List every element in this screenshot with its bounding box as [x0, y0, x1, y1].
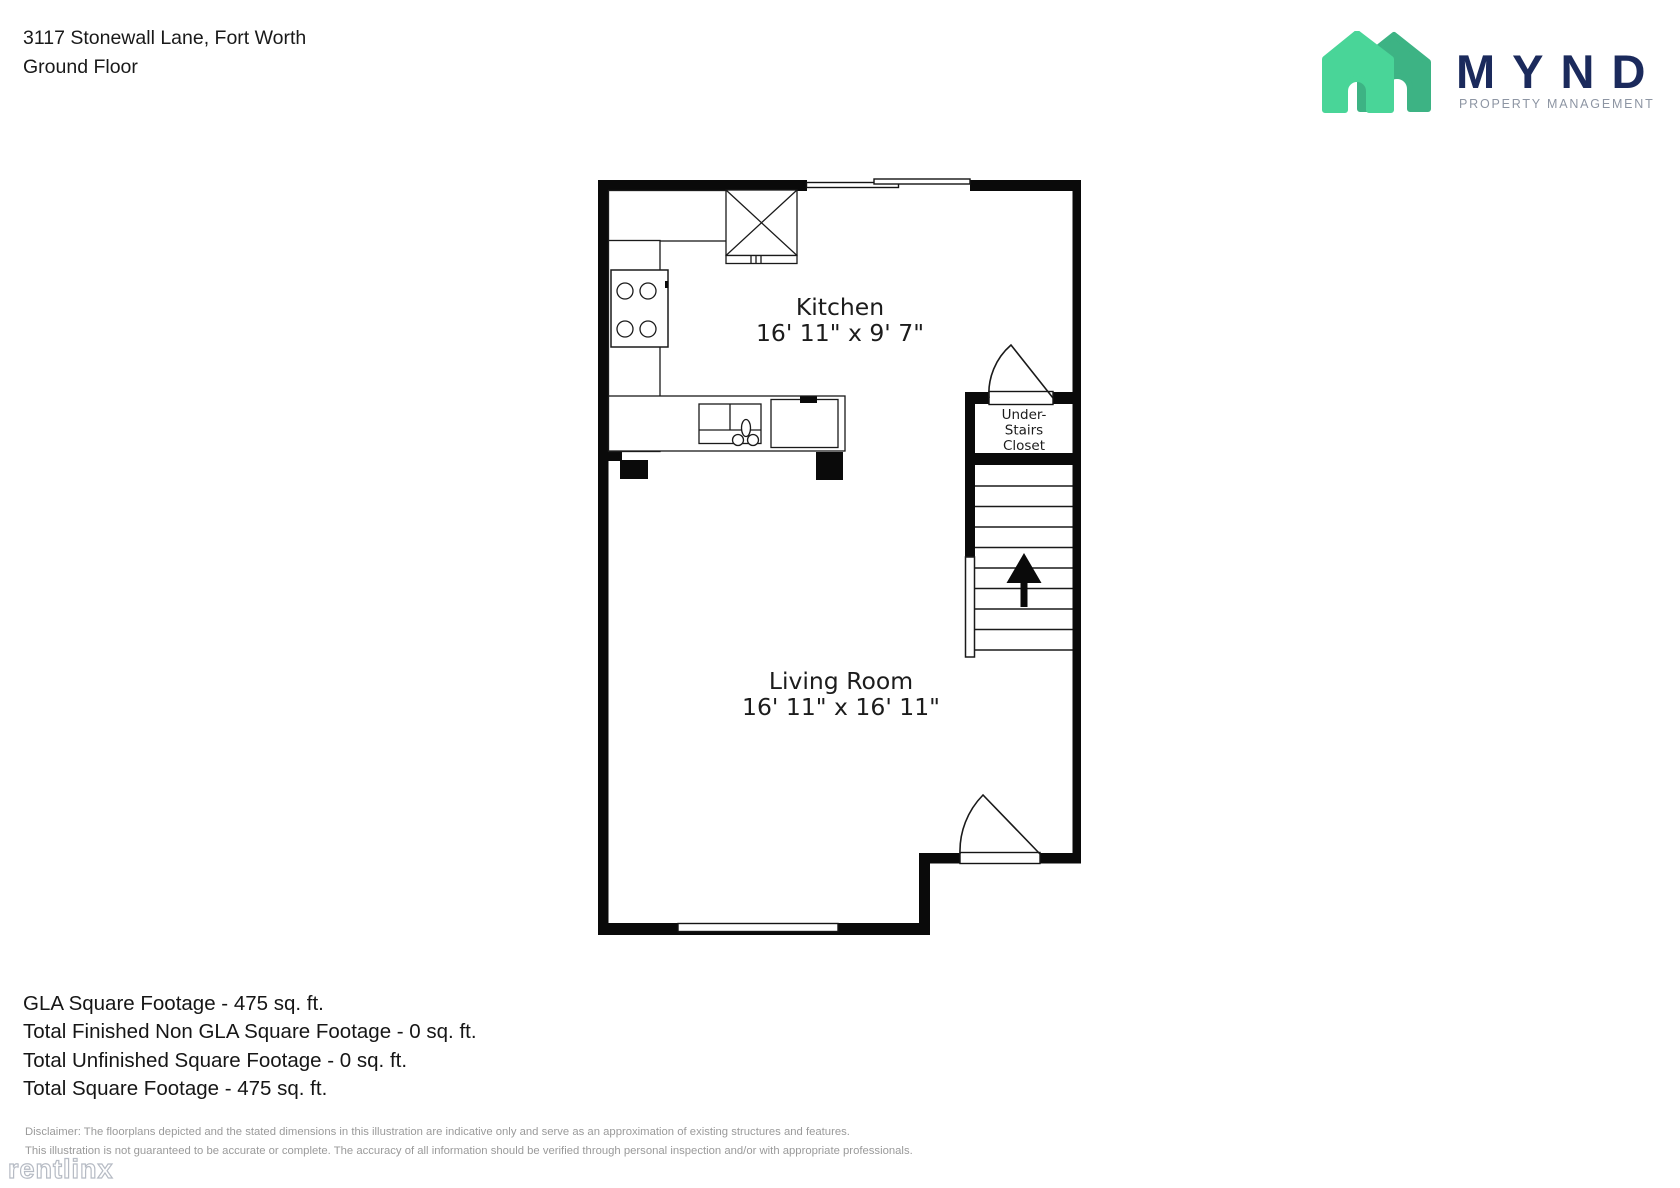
stairs	[966, 486, 1073, 657]
disclaimer-line-2: This illustration is not guaranteed to b…	[25, 1142, 913, 1161]
living-room-dimensions: 16' 11" x 16' 11"	[742, 693, 940, 721]
sink-icon	[699, 404, 761, 446]
summary-line-gla: GLA Square Footage - 475 sq. ft.	[23, 990, 477, 1018]
step-wall	[919, 853, 930, 935]
summary-line-total: Total Square Footage - 475 sq. ft.	[23, 1075, 477, 1103]
kitchen-label: Kitchen	[796, 293, 884, 321]
entry-wall-right	[1040, 853, 1081, 864]
right-wall	[1073, 180, 1082, 863]
closet-bottom-wall	[965, 453, 1074, 465]
closet-door-sill	[989, 392, 1053, 405]
living-room-label: Living Room	[769, 667, 913, 695]
rentlinx-watermark: rentlinx	[8, 1154, 114, 1185]
kitchen-window-pane-b	[874, 179, 970, 184]
left-wall	[598, 180, 609, 935]
disclaimer-line-1: Disclaimer: The floorplans depicted and …	[25, 1123, 913, 1142]
kitchen-divider-post-left	[620, 460, 648, 479]
closet-left-wall	[965, 392, 975, 557]
closet-label-line3: Closet	[1003, 438, 1045, 454]
stairs-up-arrow	[1007, 553, 1042, 607]
closet-door-swing-icon	[989, 345, 1053, 398]
square-footage-summary: GLA Square Footage - 475 sq. ft. Total F…	[23, 990, 477, 1104]
counter-top	[609, 191, 727, 242]
kitchen-dimensions: 16' 11" x 9' 7"	[756, 319, 924, 347]
top-wall-right	[970, 180, 1081, 191]
closet-label-line1: Under-	[1002, 407, 1047, 423]
entry-wall-left	[919, 853, 961, 864]
summary-line-unfinished: Total Unfinished Square Footage - 0 sq. …	[23, 1047, 477, 1075]
entry-door-swing-icon	[960, 795, 1040, 854]
entry-door-sill	[960, 853, 1040, 864]
kitchen-divider-post-right	[816, 452, 843, 480]
closet-label-line2: Stairs	[1005, 423, 1043, 439]
refrigerator-icon	[726, 190, 797, 264]
stove-icon	[611, 270, 669, 347]
stair-handrail	[966, 557, 975, 657]
floorplan-page: 3117 Stonewall Lane, Fort Worth Ground F…	[0, 0, 1680, 1188]
windows	[678, 179, 1053, 932]
living-room-window	[678, 924, 838, 932]
disclaimer-text: Disclaimer: The floorplans depicted and …	[25, 1123, 913, 1161]
kitchen-divider-bar	[598, 451, 622, 461]
summary-line-non-gla: Total Finished Non GLA Square Footage - …	[23, 1018, 477, 1046]
